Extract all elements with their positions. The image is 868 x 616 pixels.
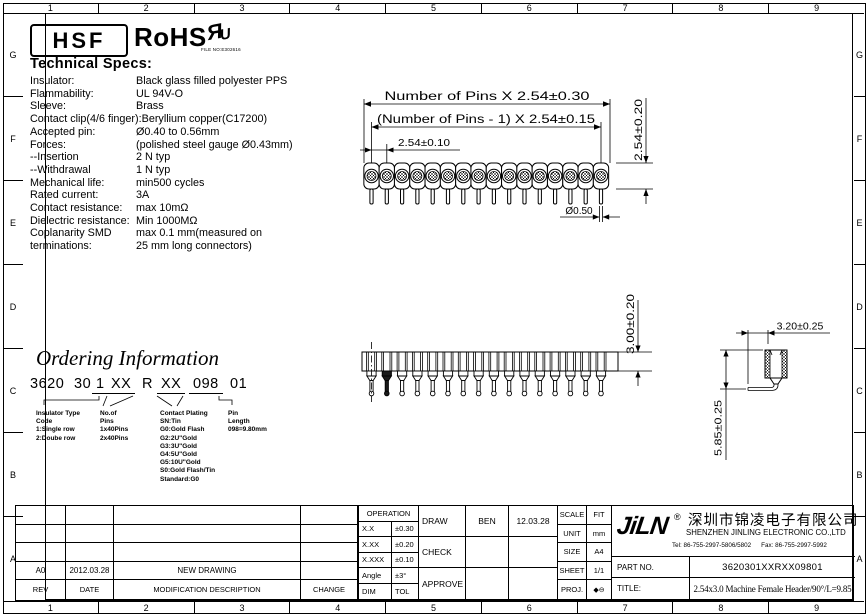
spec-row: terminations:25 mm long connectors) (30, 240, 330, 253)
spec-value: Beryllium copper(C17200) (142, 113, 267, 126)
sheet-info-cell: A4 (587, 543, 612, 562)
zone-col-label: 8 (673, 3, 769, 13)
side-view-drawing: 3.00±0.20 (348, 284, 678, 414)
center-block: OPERATIONX.X±0.30X.XX±0.20X.XXX±0.10Angl… (358, 506, 612, 599)
spec-row: Contact clip(4/6 finger):Beryllium coppe… (30, 113, 330, 126)
spec-value: max 0.1 mm(measured on (136, 227, 262, 240)
ul-u-glyph: U (218, 25, 232, 44)
approval-cell: APPROVE (419, 568, 466, 599)
pin-tip (507, 391, 512, 396)
ordering-legend-line: G3:3U"Gold (160, 443, 215, 451)
spec-value: Black glass filled polyester PPS (136, 75, 287, 88)
ordering-legend-column: Insulator TypeCode1:Single row2:Doube ro… (36, 410, 80, 443)
hsf-logo: HSF (30, 24, 128, 57)
spec-label: Accepted pin: (30, 126, 136, 139)
spec-value: Brass (136, 100, 164, 113)
title-block: A02012.03.28NEW DRAWINGREVDATEMODIFICATI… (15, 505, 854, 601)
revision-cell: A0 (16, 562, 66, 581)
spec-row: Mechanical life:min500 cycles (30, 177, 330, 190)
zone-col-label: 3 (195, 3, 291, 13)
spec-value: Ø0.40 to 0.56mm (136, 126, 219, 139)
revision-cell (114, 506, 301, 525)
ordering-legend-line: Pins (100, 418, 128, 426)
tolerance-cell: ±3° (392, 568, 419, 584)
ordering-legend-line: G0:Gold Flash (160, 426, 215, 434)
ordering-legend-line: G2:2U"Gold (160, 435, 215, 443)
pin-stem (477, 381, 480, 392)
pin-stem (554, 381, 557, 392)
pin-collar (489, 371, 498, 376)
drawing-sheet: 123456789 123456789 GFEDCBA GFEDCBA HSF … (0, 0, 868, 616)
ordering-code-segment: 3620 (30, 376, 64, 392)
dim-total-width: Number of Pins X 2.54±0.30 (385, 91, 590, 103)
pin-tip (599, 391, 604, 396)
dim-center-spacing: (Number of Pins - 1) X 2.54±0.15 (377, 114, 595, 126)
ordering-legend-line: Pin (228, 410, 267, 418)
spec-value: UL 94V-O (136, 88, 183, 101)
socket-bore (459, 172, 468, 181)
ordering-legend-column: No.ofPins1x40Pins2x40Pins (100, 410, 128, 443)
spec-row: Sleeve:Brass (30, 100, 330, 113)
pin-collar (581, 371, 590, 376)
pin-chamfer (474, 376, 483, 381)
dim-pitch: 2.54±0.10 (398, 138, 451, 149)
spec-row: --Insertion2 N typ (30, 151, 330, 164)
pin-stem (538, 381, 541, 392)
tolerance-cell: X.X (359, 522, 392, 538)
revision-cell: NEW DRAWING (114, 562, 301, 581)
pin-tip (385, 391, 390, 396)
socket-tail (584, 189, 587, 204)
ordering-legend-line: Code (36, 418, 80, 426)
pin-tip (446, 391, 451, 396)
zone-col-label: 7 (578, 602, 674, 614)
revision-header-cell: REV (16, 580, 66, 599)
sheet-info-cell: SHEET (558, 562, 587, 581)
pin-chamfer (566, 376, 575, 381)
tolerance-table: OPERATIONX.X±0.30X.XX±0.20X.XXX±0.10Angl… (358, 506, 419, 599)
revision-cell (66, 506, 114, 525)
spec-label: Contact resistance: (30, 202, 136, 215)
pin-collar (443, 371, 452, 376)
ordering-legend-column: Contact PlatingSN:TinG0:Gold FlashG2:2U"… (160, 410, 215, 484)
sheet-info-cell: FIT (587, 506, 612, 525)
ordering-legend-line: Insulator Type (36, 410, 80, 418)
sheet-info-cell: SCALE (558, 506, 587, 525)
pin-collar (535, 371, 544, 376)
revision-cell (114, 525, 301, 544)
pin-collar (520, 371, 529, 376)
pin-chamfer (581, 376, 590, 381)
pin-collar (459, 371, 468, 376)
part-no-value: 3620301XXRXX09801 (690, 557, 855, 577)
spec-label: terminations: (30, 240, 136, 253)
ordering-legend-line: Length (228, 418, 267, 426)
spec-value: 1 N typ (136, 164, 170, 177)
spec-row: Insulator:Black glass filled polyester P… (30, 75, 330, 88)
registered-mark-icon: ® (674, 512, 681, 522)
dim-end-width: 3.20±0.25 (777, 321, 824, 333)
spec-value: 25 mm long connectors) (136, 240, 252, 253)
pin-chamfer (520, 376, 529, 381)
socket-bore (489, 172, 498, 181)
zone-col-label: 1 (3, 602, 99, 614)
socket-bore (597, 172, 606, 181)
pin-stem (599, 381, 602, 392)
pin-collar (413, 371, 422, 376)
approval-cell (509, 537, 558, 568)
spec-row: Coplanarity SMDmax 0.1 mm(measured on (30, 227, 330, 240)
revision-cell: 2012.03.28 (66, 562, 114, 581)
approval-cell (466, 537, 509, 568)
ordering-legend-line: 1:Single row (36, 426, 80, 434)
dim-pin-diameter: Ø0.50 (565, 206, 593, 217)
sheet-info-cell: SIZE (558, 543, 587, 562)
top-view-pins (370, 189, 603, 204)
spec-label: Forces: (30, 139, 136, 152)
tolerance-cell: Angle (359, 568, 392, 584)
pin-chamfer (428, 376, 437, 381)
revision-header-cell: CHANGE (301, 580, 358, 599)
ordering-legend-line: 2:Doube row (36, 435, 80, 443)
pin-stem (385, 381, 388, 392)
ordering-legend-line: 098=9.80mm (228, 426, 267, 434)
sheet-info-cell: PROJ. (558, 580, 587, 599)
revision-cell (16, 506, 66, 525)
socket-tail (599, 189, 602, 204)
pin-tip (461, 391, 466, 396)
pin-tip (476, 391, 481, 396)
zone-row-label: E (3, 181, 23, 265)
socket-bore (382, 172, 391, 181)
sheet-info-table: SCALEFITUNITmmSIZEA4SHEET1/1PROJ.◆⊖ (558, 506, 612, 599)
spec-row: Flammability:UL 94V-O (30, 88, 330, 101)
socket-bore (428, 172, 437, 181)
socket-tail (446, 189, 449, 204)
spec-value: 3A (136, 189, 149, 202)
tolerance-cell: ±0.30 (392, 522, 419, 538)
spec-value: 2 N typ (136, 151, 170, 164)
pin-chamfer (551, 376, 560, 381)
ordering-code-segment: R (142, 376, 153, 392)
ordering-legend-line: 2x40Pins (100, 435, 128, 443)
spec-row: Forces:(polished steel gauge Ø0.43mm) (30, 139, 330, 152)
spec-label: --Withdrawal (30, 164, 136, 177)
spec-label: Dielectric resistance: (30, 215, 136, 228)
pin-tip (492, 391, 497, 396)
pin-chamfer (459, 376, 468, 381)
approval-cell (509, 568, 558, 599)
socket-bore (413, 172, 422, 181)
ordering-code-segment: 30 (74, 376, 91, 392)
ordering-legend-line: G5:10U"Gold (160, 459, 215, 467)
pin-stem (508, 381, 511, 392)
zone-col-label: 9 (769, 3, 864, 13)
sheet-info-cell: mm (587, 525, 612, 544)
socket-tail (431, 189, 434, 204)
pin-collar (566, 371, 575, 376)
tolerance-cell: X.XX (359, 537, 392, 553)
revision-cell (114, 543, 301, 562)
ordering-title: Ordering Information (36, 346, 219, 371)
drawing-title-row: TITLE: 2.54x3.0 Machine Female Header/90… (612, 578, 855, 599)
zone-row-label: D (3, 265, 23, 349)
pin-chamfer (413, 376, 422, 381)
pin-stem (523, 381, 526, 392)
part-no-label: PART NO. (612, 557, 690, 577)
spec-label: Mechanical life: (30, 177, 136, 190)
approval-cell: CHECK (419, 537, 466, 568)
spec-value: (polished steel gauge Ø0.43mm) (136, 139, 293, 152)
drawing-title-label: TITLE: (612, 578, 690, 599)
socket-tail (538, 189, 541, 204)
ordering-legend-line: S0:Gold Flash/Tin (160, 467, 215, 475)
spec-label: Sleeve: (30, 100, 136, 113)
revision-header-cell: MODIFICATION DESCRIPTION (114, 580, 301, 599)
pin-stem (431, 381, 434, 392)
approval-cell: DRAW (419, 506, 466, 537)
zone-col-label: 7 (578, 3, 674, 13)
sheet-info-cell: UNIT (558, 525, 587, 544)
pin-collar (596, 371, 605, 376)
socket-tail (462, 189, 465, 204)
pin-stem (401, 381, 404, 392)
revision-cell (301, 543, 358, 562)
pin-chamfer (535, 376, 544, 381)
pin-tip (415, 391, 420, 396)
pin-stem (416, 381, 419, 392)
revision-cell (301, 525, 358, 544)
ordering-code-segment: 01 (230, 376, 247, 392)
spec-row: Contact resistance:max 10mΩ (30, 202, 330, 215)
tolerance-title: OPERATION (359, 506, 419, 522)
pin-chamfer (382, 376, 391, 381)
spec-row: Accepted pin:Ø0.40 to 0.56mm (30, 126, 330, 139)
ordering-legend-column: PinLength098=9.80mm (228, 410, 267, 435)
spec-row: Dielectric resistance:Min 1000MΩ (30, 215, 330, 228)
tech-specs-list: Insulator:Black glass filled polyester P… (30, 75, 330, 253)
zone-col-label: 2 (99, 3, 195, 13)
socket-tail (416, 189, 419, 204)
socket-tail (508, 189, 511, 204)
approval-cell: BEN (466, 506, 509, 537)
company-fax: Fax: 86-755-2997-5992 (761, 542, 827, 549)
revision-cell (301, 506, 358, 525)
part-no-row: PART NO. 3620301XXRXX09801 (612, 557, 855, 578)
pin-stem (584, 381, 587, 392)
revision-table: A02012.03.28NEW DRAWINGREVDATEMODIFICATI… (16, 506, 358, 599)
tech-specs-heading: Technical Specs: (30, 56, 152, 72)
socket-tail (492, 189, 495, 204)
pin-tip (583, 391, 588, 396)
socket-bore (444, 172, 453, 181)
ordering-legend-line: No.of (100, 410, 128, 418)
dim-row-width: 2.54±0.20 (633, 99, 645, 161)
zone-col-label: 4 (290, 3, 386, 13)
ul-recognized-icon: ЯU (205, 18, 235, 46)
socket-bore (581, 172, 590, 181)
end-view-drawing: 3.20±0.25 5.85±0.25 (700, 300, 860, 472)
socket-bore (505, 172, 514, 181)
pin-collar (428, 371, 437, 376)
revision-cell (66, 543, 114, 562)
pin-collar (382, 371, 391, 376)
company-header: JiLN ® 深圳市锦凌电子有限公司 SHENZHEN JINLING ELEC… (612, 506, 855, 557)
ordering-legend-line: Contact Plating (160, 410, 215, 418)
socket-bore (566, 172, 575, 181)
spec-label: Contact clip(4/6 finger): (30, 113, 142, 126)
pin-stem (492, 381, 495, 392)
zone-row-label: F (3, 97, 23, 181)
company-tel: Tel: 86-755-2997-5806/5802 (672, 542, 751, 549)
pin-collar (505, 371, 514, 376)
revision-cell (16, 525, 66, 544)
pin-stem (569, 381, 572, 392)
socket-bore (367, 172, 376, 181)
pin-chamfer (398, 376, 407, 381)
jiln-logo: JiLN (615, 512, 669, 541)
pin-collar (551, 371, 560, 376)
company-block: JiLN ® 深圳市锦凌电子有限公司 SHENZHEN JINLING ELEC… (612, 506, 855, 599)
dim-insulator-height: 3.00±0.20 (625, 294, 637, 354)
company-contact: Tel: 86-755-2997-5806/5802Fax: 86-755-29… (672, 542, 837, 549)
spec-label: Insulator: (30, 75, 136, 88)
pin-collar (398, 371, 407, 376)
zone-col-label: 1 (3, 3, 99, 13)
pin-tip (553, 391, 558, 396)
spec-value: Min 1000MΩ (136, 215, 197, 228)
revision-cell (16, 543, 66, 562)
tolerance-cell: X.XXX (359, 553, 392, 569)
zone-col-label: 3 (195, 602, 291, 614)
pin-chamfer (489, 376, 498, 381)
spec-label: Rated current: (30, 189, 136, 202)
socket-bore (398, 172, 407, 181)
drawing-title-value: 2.54x3.0 Machine Female Header/90°/L=9.8… (690, 578, 855, 599)
zone-col-label: 9 (769, 602, 864, 614)
socket-tail (370, 189, 373, 204)
socket-tail (569, 189, 572, 204)
pin-tip (538, 391, 543, 396)
zone-row-label: C (3, 349, 23, 433)
pin-tip (522, 391, 527, 396)
revision-cell (301, 562, 358, 581)
socket-tail (385, 189, 388, 204)
spec-label: Coplanarity SMD (30, 227, 136, 240)
sheet-info-cell: ◆⊖ (587, 580, 612, 599)
sheet-info-cell: 1/1 (587, 562, 612, 581)
pin-chamfer (596, 376, 605, 381)
zone-col-label: 5 (386, 3, 482, 13)
ordering-legend-line: 1x40Pins (100, 426, 128, 434)
pin-stem (462, 381, 465, 392)
approval-table: DRAWBEN12.03.28CHECKAPPROVE (419, 506, 558, 599)
pin-tip (568, 391, 573, 396)
approval-cell (466, 568, 509, 599)
zone-col-label: 2 (99, 602, 195, 614)
socket-bore (535, 172, 544, 181)
dim-end-overall-height: 5.85±0.25 (713, 400, 725, 456)
ul-file-number: FILE NO:E302616 (201, 47, 241, 52)
tolerance-cell: ±0.20 (392, 537, 419, 553)
zone-row-label: G (3, 13, 23, 97)
tolerance-cell: DIM (359, 584, 392, 600)
spec-row: Rated current:3A (30, 189, 330, 202)
socket-bore (551, 172, 560, 181)
zone-col-label: 6 (482, 3, 578, 13)
socket-tail (477, 189, 480, 204)
zone-col-label: 4 (290, 602, 386, 614)
pin-chamfer (505, 376, 514, 381)
pin-chamfer (443, 376, 452, 381)
zone-col-label: 6 (482, 602, 578, 614)
ordering-legend-line: SN:Tin (160, 418, 215, 426)
rohs-logo: RoHS (134, 22, 207, 53)
tolerance-cell: ±0.10 (392, 553, 419, 569)
spec-value: max 10mΩ (136, 202, 188, 215)
tolerance-cell: TOL (392, 584, 419, 600)
zone-columns-bottom: 123456789 (3, 601, 864, 614)
hsf-logo-text: HSF (53, 28, 106, 54)
pin-tip (400, 391, 405, 396)
zone-col-label: 5 (386, 602, 482, 614)
spec-value: min500 cycles (136, 177, 204, 190)
zone-col-label: 8 (673, 602, 769, 614)
approval-cell: 12.03.28 (509, 506, 558, 537)
socket-bore (474, 172, 483, 181)
revision-header-cell: DATE (66, 580, 114, 599)
revision-cell (66, 525, 114, 544)
socket-bore (520, 172, 529, 181)
socket-tail (401, 189, 404, 204)
ordering-legend-line: G4:5U"Gold (160, 451, 215, 459)
pin-collar (474, 371, 483, 376)
pin-tip (430, 391, 435, 396)
company-name-cn: 深圳市锦凌电子有限公司 (688, 509, 859, 530)
spec-label: --Insertion (30, 151, 136, 164)
spec-row: --Withdrawal1 N typ (30, 164, 330, 177)
company-name-en: SHENZHEN JINLING ELECTRONIC CO.,LTD (686, 528, 846, 537)
socket-tail (554, 189, 557, 204)
top-view-drawing: Number of Pins X 2.54±0.30 (Number of Pi… (348, 84, 858, 236)
ordering-legend-line: Standard:G0 (160, 476, 215, 484)
pin-stem (446, 381, 449, 392)
spec-label: Flammability: (30, 88, 136, 101)
socket-tail (523, 189, 526, 204)
